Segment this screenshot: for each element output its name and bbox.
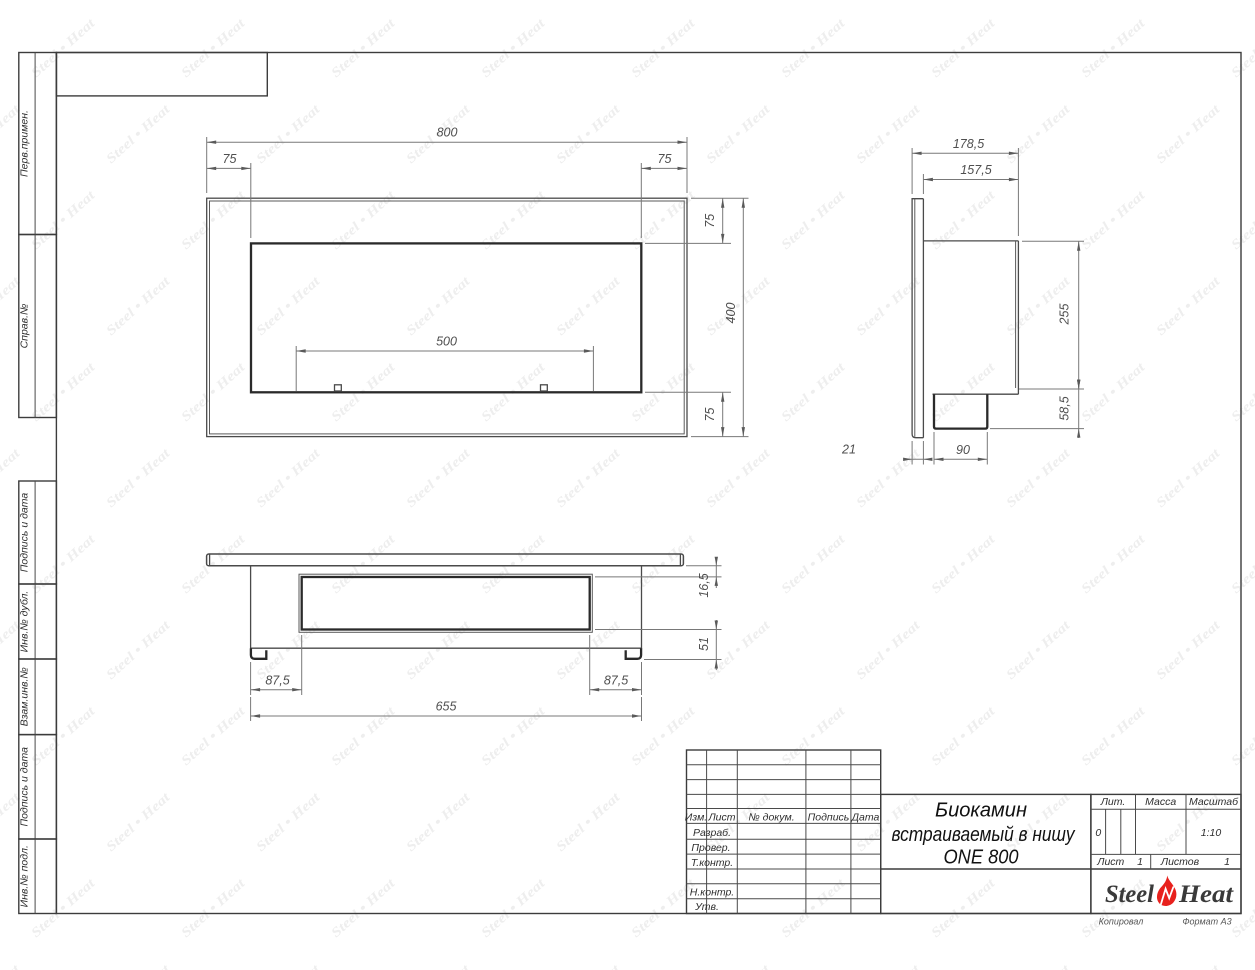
svg-text:58,5: 58,5	[1058, 396, 1072, 420]
svg-text:встраиваемый в нишу: встраиваемый в нишу	[892, 824, 1076, 846]
svg-text:Провер.: Провер.	[691, 842, 730, 854]
svg-text:655: 655	[436, 700, 457, 714]
svg-text:Подпись и дата: Подпись и дата	[19, 747, 31, 827]
svg-text:Изм.: Изм.	[685, 812, 707, 824]
svg-text:1: 1	[1224, 856, 1230, 868]
svg-text:255: 255	[1058, 304, 1072, 326]
svg-text:Утв.: Утв.	[694, 901, 719, 913]
svg-text:75: 75	[223, 152, 237, 166]
svg-text:Биокамин: Биокамин	[935, 800, 1027, 822]
svg-text:Перв.примен.: Перв.примен.	[19, 110, 31, 177]
svg-text:Формат А3: Формат А3	[1182, 917, 1231, 927]
svg-text:90: 90	[956, 443, 970, 457]
svg-text:75: 75	[658, 152, 672, 166]
svg-text:87,5: 87,5	[604, 674, 628, 688]
svg-text:Подпись: Подпись	[808, 812, 850, 824]
svg-text:ONE 800: ONE 800	[944, 847, 1019, 869]
svg-text:Инв.№ подл.: Инв.№ подл.	[19, 845, 31, 907]
svg-text:1:10: 1:10	[1201, 827, 1222, 839]
svg-text:№ докум.: № докум.	[748, 812, 794, 824]
svg-text:Справ.№: Справ.№	[19, 304, 31, 349]
svg-text:Heat: Heat	[1178, 881, 1234, 908]
svg-text:1: 1	[1137, 856, 1143, 868]
svg-text:400: 400	[724, 303, 738, 324]
svg-text:Копировал: Копировал	[1099, 917, 1144, 927]
svg-text:Лит.: Лит.	[1100, 796, 1126, 808]
svg-text:Н.контр.: Н.контр.	[690, 887, 734, 899]
svg-text:Steel: Steel	[1105, 881, 1154, 908]
svg-text:0: 0	[1095, 827, 1101, 839]
svg-text:Подпись и дата: Подпись и дата	[19, 493, 31, 573]
svg-text:Т.контр.: Т.контр.	[691, 857, 733, 869]
svg-text:Разраб.: Разраб.	[693, 827, 731, 839]
svg-text:75: 75	[703, 214, 717, 228]
svg-text:Листов: Листов	[1160, 856, 1200, 868]
svg-text:Дата: Дата	[851, 812, 880, 824]
svg-text:21: 21	[841, 443, 856, 457]
svg-text:16,5: 16,5	[697, 573, 711, 597]
svg-text:178,5: 178,5	[953, 137, 984, 151]
svg-text:800: 800	[437, 126, 458, 140]
svg-text:51: 51	[697, 637, 711, 651]
svg-text:75: 75	[703, 408, 717, 422]
svg-text:157,5: 157,5	[960, 163, 991, 177]
svg-text:Масса: Масса	[1145, 796, 1176, 808]
svg-text:Инв.№ дубл.: Инв.№ дубл.	[19, 591, 31, 653]
svg-text:Лист: Лист	[1096, 856, 1124, 868]
svg-text:Лист: Лист	[707, 812, 735, 824]
svg-text:500: 500	[436, 335, 457, 349]
svg-text:Взам.инв.№: Взам.инв.№	[19, 667, 31, 726]
svg-text:Масштаб: Масштаб	[1189, 796, 1239, 808]
svg-text:87,5: 87,5	[265, 674, 289, 688]
